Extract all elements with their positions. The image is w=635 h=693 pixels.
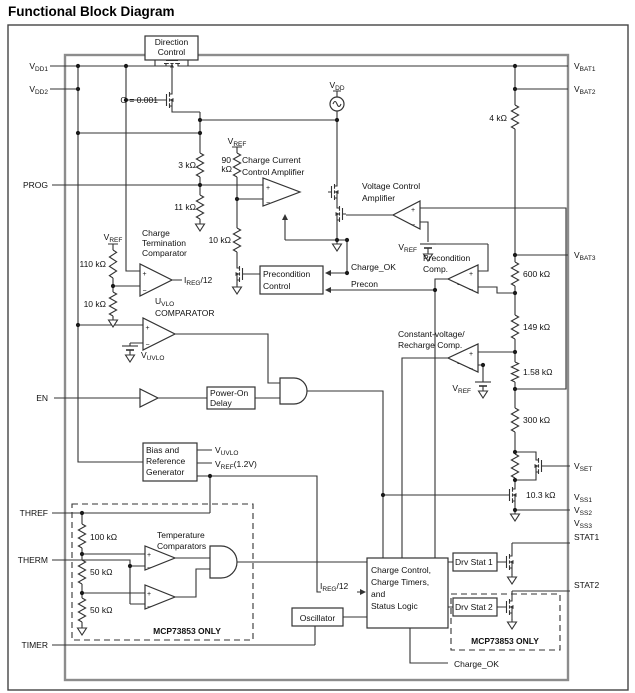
svg-text:1.58 kΩ: 1.58 kΩ	[523, 367, 553, 377]
arrow-ireg-into-charge-logic	[360, 589, 366, 595]
pin-vdd2: VDD2	[29, 84, 48, 96]
junction-dot	[80, 552, 84, 556]
functional-block-diagram: Functional Block Diagram	[0, 0, 635, 693]
pin-vss2: VSS2	[574, 505, 592, 517]
svg-text:Recharge Comp.: Recharge Comp.	[398, 340, 462, 350]
svg-text:+: +	[143, 271, 147, 278]
stat2-mosfet	[503, 598, 514, 616]
resistor-110k	[109, 250, 116, 278]
charge-termination-comparator-label: Charge	[142, 228, 170, 238]
oscillator-label: Oscillator	[300, 613, 336, 623]
vdd-current-source	[330, 97, 344, 111]
charge-ok-label: Charge_OK	[454, 659, 499, 669]
svg-text:−: −	[146, 342, 150, 349]
charge-ok-label: Charge_OK	[351, 262, 396, 272]
junction-dot	[198, 118, 202, 122]
battery-vuvlo	[122, 346, 138, 350]
svg-text:−: −	[147, 565, 151, 572]
ground-symbol	[511, 511, 520, 521]
junction-dot	[124, 64, 128, 68]
svg-text:Reference: Reference	[146, 456, 185, 466]
ground-symbol	[126, 352, 135, 362]
mcp73853-only-note: MCP73853 ONLY	[471, 636, 539, 646]
pin-vss1: VSS1	[574, 492, 592, 504]
pin-stat1: STAT1	[574, 532, 599, 542]
ground-symbol	[233, 284, 242, 294]
junction-dot	[76, 87, 80, 91]
resistor-10k-term	[109, 292, 116, 316]
junction-dot	[513, 478, 517, 482]
and-gate-temperature	[210, 546, 237, 578]
ireg-divider-mosfet	[236, 265, 247, 283]
amplifier-labels: Charge Current Control Amplifier Voltage…	[142, 155, 471, 551]
pin-vbat3: VBAT3	[574, 250, 596, 262]
junction-dot	[345, 271, 349, 275]
drv-stat2-label: Drv Stat 2	[455, 602, 493, 612]
resistor-11k	[196, 195, 203, 219]
junction-dot	[345, 238, 349, 242]
pin-therm: THERM	[18, 555, 48, 565]
wires	[50, 58, 570, 663]
svg-text:−: −	[411, 222, 415, 229]
precondition-comparator-symbol	[448, 265, 478, 293]
junction-dot	[198, 183, 202, 187]
svg-text:−: −	[143, 288, 147, 295]
precon-label: Precon	[351, 279, 378, 289]
direction-control-label: Direction	[155, 37, 189, 47]
outer-frame	[8, 25, 628, 690]
stat1-mosfet	[503, 553, 514, 571]
drive-mosfet-upper	[328, 183, 339, 201]
pin-prog: PROG	[23, 180, 48, 190]
junction-dot	[513, 87, 517, 91]
svg-text:+: +	[411, 207, 415, 214]
vref-label: VREF	[398, 242, 417, 254]
junction-dot	[76, 64, 80, 68]
svg-text:Comparators: Comparators	[157, 541, 206, 551]
pin-en: EN	[36, 393, 48, 403]
junction-dot	[513, 450, 517, 454]
svg-text:Termination: Termination	[142, 238, 186, 248]
precondition-control-label: Precondition	[263, 269, 311, 279]
svg-text:Comparator: Comparator	[142, 248, 187, 258]
uvlo-comparator-label: UVLO	[155, 296, 174, 308]
junction-dot	[76, 323, 80, 327]
arrow-into-precondition-control-bottom	[325, 287, 331, 293]
ground-symbol	[508, 574, 517, 584]
sense-mosfet-g001	[163, 91, 174, 109]
drv-stat1-label: Drv Stat 1	[455, 557, 493, 567]
junction-dot	[513, 291, 517, 295]
pin-stat2: STAT2	[574, 580, 599, 590]
ground-symbol	[196, 221, 205, 231]
vref-label: VREF	[104, 232, 123, 244]
pin-vdd1: VDD1	[29, 61, 48, 73]
svg-text:−: −	[266, 200, 270, 207]
svg-text:Control: Control	[158, 47, 186, 57]
ground-symbol	[479, 388, 488, 398]
junction-dot	[111, 284, 115, 288]
voltage-control-amp-label: Voltage Control	[362, 181, 420, 191]
resistor-90k	[233, 153, 240, 177]
vuvlo-battery-label: VUVLO	[141, 350, 164, 362]
arrow-into-precondition-control-top	[325, 270, 331, 276]
junction-dot	[381, 493, 385, 497]
svg-text:Charge Timers,: Charge Timers,	[371, 577, 429, 587]
vdd-label: VDD	[329, 80, 344, 92]
junction-dot	[513, 253, 517, 257]
junction-dot	[513, 508, 517, 512]
svg-text:10 kΩ: 10 kΩ	[84, 299, 106, 309]
junction-dot	[80, 511, 84, 515]
page-title: Functional Block Diagram	[8, 4, 175, 19]
junction-dot	[76, 131, 80, 135]
resistor-300k	[511, 408, 518, 432]
pin-vset: VSET	[574, 461, 592, 473]
vref-label: VREF	[452, 383, 471, 395]
resistor-1-58k	[511, 362, 518, 382]
resistor-vset-trim	[511, 454, 518, 478]
battery-vref-recharge	[475, 382, 491, 386]
junction-dot	[481, 363, 485, 367]
svg-text:50 kΩ: 50 kΩ	[90, 567, 112, 577]
junction-dot	[513, 64, 517, 68]
svg-text:Delay: Delay	[210, 398, 232, 408]
junction-dot	[80, 591, 84, 595]
svg-text:+: +	[147, 591, 151, 598]
svg-text:−: −	[469, 366, 473, 373]
cv-recharge-comparator-label: Constant-voltage/	[398, 329, 465, 339]
gain-label: G = 0.001	[120, 95, 158, 105]
svg-text:50 kΩ: 50 kΩ	[90, 605, 112, 615]
resistor-149k	[511, 315, 518, 339]
pin-thref: THREF	[20, 508, 48, 518]
svg-text:100 kΩ: 100 kΩ	[90, 532, 117, 542]
svg-text:Comp.: Comp.	[423, 264, 448, 274]
resistor-4k	[511, 105, 518, 129]
resistor-10k-prog	[233, 228, 240, 252]
junction-dot	[128, 564, 132, 568]
junction-dot	[335, 238, 339, 242]
svg-text:Control: Control	[263, 281, 291, 291]
svg-text:and: and	[371, 589, 385, 599]
svg-text:600 kΩ: 600 kΩ	[523, 269, 550, 279]
vset-mosfet	[535, 457, 546, 475]
junction-dot	[208, 474, 212, 478]
pin-timer: TIMER	[22, 640, 48, 650]
voltage-control-amp-symbol	[393, 201, 420, 229]
svg-text:COMPARATOR: COMPARATOR	[155, 308, 215, 318]
ground-symbol	[508, 619, 517, 629]
svg-text:+: +	[469, 351, 473, 358]
vref-1v2-output-label: VREF(1.2V)	[215, 459, 257, 471]
resistor-600k	[511, 262, 518, 286]
battery-vref-vca	[420, 244, 436, 248]
pin-vbat1: VBAT1	[574, 61, 596, 73]
svg-text:4 kΩ: 4 kΩ	[489, 113, 507, 123]
pin-vss3: VSS3	[574, 518, 592, 530]
ireg12-label: IREG/12	[184, 275, 213, 287]
svg-text:3 kΩ: 3 kΩ	[178, 160, 196, 170]
drive-mosfet-lower	[336, 205, 347, 223]
precondition-comparator-label: Precondition	[423, 253, 471, 263]
resistor-3k	[196, 153, 203, 177]
temperature-comparators-label: Temperature	[157, 530, 205, 540]
junction-dot	[335, 118, 339, 122]
resistor-50k-a	[78, 560, 85, 584]
junction-dot	[433, 288, 437, 292]
svg-text:+: +	[266, 185, 270, 192]
power-on-delay-label: Power-On	[210, 388, 249, 398]
charge-logic-label: Charge Control,	[371, 565, 431, 575]
charge-current-amp-label: Charge Current	[242, 155, 301, 165]
svg-text:+: +	[469, 271, 473, 278]
ground-symbol	[78, 625, 87, 635]
junction-dot	[513, 350, 517, 354]
resistor-50k-b	[78, 598, 85, 622]
svg-text:10.3 kΩ: 10.3 kΩ	[526, 490, 556, 500]
resistor-100k	[78, 524, 85, 548]
svg-text:Generator: Generator	[146, 467, 184, 477]
vss-10-3k-mosfet	[506, 486, 517, 504]
junction-dot	[235, 197, 239, 201]
svg-text:−: −	[469, 287, 473, 294]
arrow-feedback-up	[282, 214, 288, 220]
mcp73853-only-note: MCP73853 ONLY	[153, 626, 221, 636]
and-gate-enable	[280, 378, 307, 404]
svg-text:11 kΩ: 11 kΩ	[174, 202, 196, 212]
ireg12-label: IREG/12	[320, 581, 349, 593]
svg-text:110 kΩ: 110 kΩ	[79, 259, 106, 269]
svg-text:10 kΩ: 10 kΩ	[209, 235, 231, 245]
svg-text:+: +	[147, 552, 151, 559]
svg-text:Control Amplifier: Control Amplifier	[242, 167, 305, 177]
bias-generator-label: Bias and	[146, 445, 179, 455]
vref-label: VREF	[228, 136, 247, 148]
svg-text:kΩ: kΩ	[221, 164, 232, 174]
junction-dot	[198, 131, 202, 135]
vuvlo-output-label: VUVLO	[215, 445, 238, 457]
svg-text:300 kΩ: 300 kΩ	[523, 415, 550, 425]
pin-vbat2: VBAT2	[574, 84, 596, 96]
svg-text:−: −	[147, 604, 151, 611]
svg-text:Amplifier: Amplifier	[362, 193, 395, 203]
svg-text:Status Logic: Status Logic	[371, 601, 419, 611]
en-buffer-symbol	[140, 389, 158, 407]
ground-symbol	[333, 241, 342, 251]
junction-dot	[513, 387, 517, 391]
svg-text:+: +	[146, 325, 150, 332]
svg-text:149 kΩ: 149 kΩ	[523, 322, 550, 332]
